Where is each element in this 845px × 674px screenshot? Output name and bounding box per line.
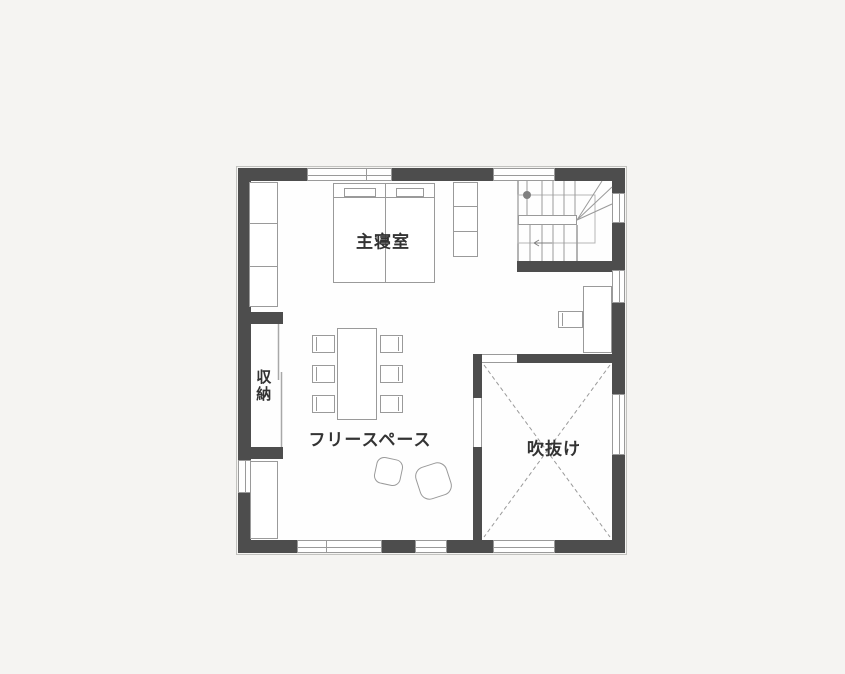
chair bbox=[312, 395, 335, 413]
exterior-wall-right bbox=[612, 168, 625, 553]
window-sash-divider bbox=[326, 541, 327, 552]
shelf-divider bbox=[454, 206, 477, 207]
stair-break-bar bbox=[518, 215, 577, 225]
bedside-shelf bbox=[453, 182, 478, 257]
pillow bbox=[396, 188, 424, 197]
void-wall-top bbox=[517, 354, 612, 363]
chair bbox=[380, 395, 403, 413]
exterior-wall-top bbox=[238, 168, 625, 181]
desk-chair bbox=[558, 311, 583, 328]
pillow bbox=[344, 188, 376, 197]
void-wall-left-lower bbox=[473, 447, 482, 540]
void-wall-left-upper bbox=[473, 354, 482, 398]
chair bbox=[380, 335, 403, 353]
room-label-free-space: フリースペース bbox=[308, 432, 431, 451]
chair bbox=[312, 365, 335, 383]
window-right-3 bbox=[612, 394, 625, 455]
window-bottom-1 bbox=[297, 540, 382, 553]
room-label-master-bedroom: 主寝室 bbox=[356, 234, 410, 253]
storage-wall-top bbox=[238, 312, 283, 324]
void-railing-top bbox=[482, 354, 517, 363]
wardrobe bbox=[249, 182, 278, 307]
room-label-storage: 収納 bbox=[255, 369, 272, 403]
shelf-divider bbox=[454, 231, 477, 232]
floor-plan-canvas: 主寝室 収納 フリースペース 吹抜け bbox=[0, 0, 845, 674]
stair-wall-bottom bbox=[517, 261, 612, 272]
storage-wall-bottom bbox=[238, 447, 283, 459]
window-bottom-2 bbox=[415, 540, 447, 553]
desk bbox=[583, 286, 612, 353]
window-top-2 bbox=[493, 168, 555, 181]
table bbox=[337, 328, 377, 420]
wardrobe-shelf-divider bbox=[250, 266, 277, 267]
chair bbox=[312, 335, 335, 353]
window-top-1 bbox=[307, 168, 392, 181]
bed-headboard-line bbox=[334, 197, 434, 198]
window-right-1 bbox=[612, 193, 625, 223]
closet-cabinet bbox=[250, 461, 278, 539]
window-right-2 bbox=[612, 270, 625, 303]
window-bottom-3 bbox=[493, 540, 555, 553]
wardrobe-shelf-divider bbox=[250, 223, 277, 224]
room-label-void: 吹抜け bbox=[527, 441, 581, 460]
void-railing-left bbox=[473, 398, 482, 447]
chair bbox=[380, 365, 403, 383]
window-sash-divider bbox=[366, 169, 367, 180]
